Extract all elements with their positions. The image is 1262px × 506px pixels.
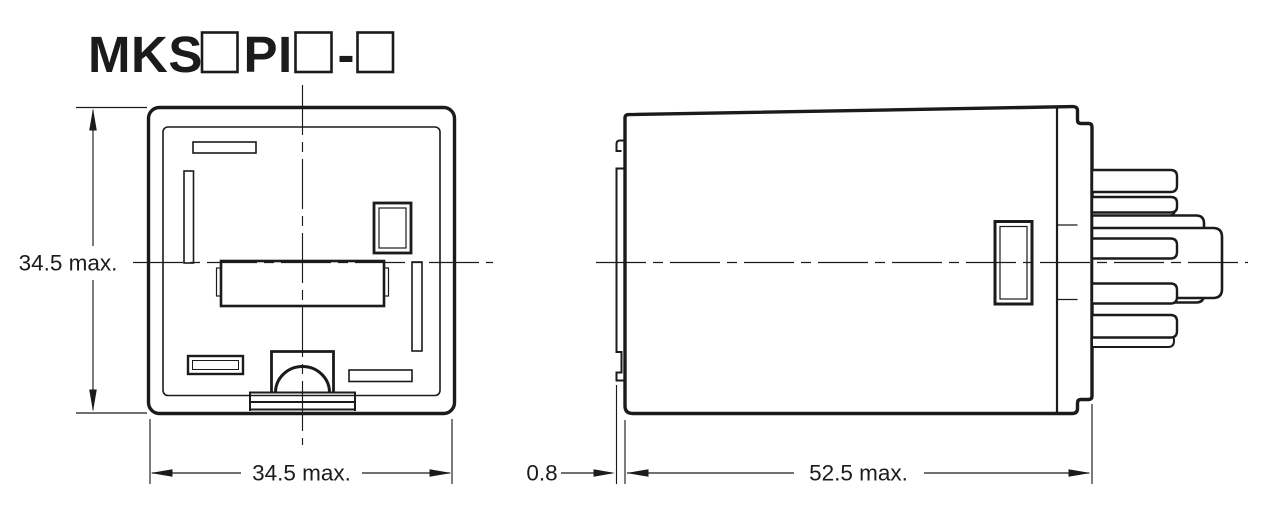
title-placeholder-box-1 (202, 33, 238, 73)
arrowhead-up (89, 109, 97, 131)
dimension-front-width: 34.5 max. (150, 419, 452, 486)
pin-2 (1092, 197, 1177, 213)
title-separator: - (338, 26, 355, 83)
arrowhead-left (627, 469, 649, 477)
arrowhead-right (594, 469, 616, 477)
length-dimension-label: 52.5 max. (809, 461, 908, 486)
pin-4 (1092, 284, 1177, 304)
width-dimension-label: 34.5 max. (252, 461, 351, 486)
dimension-side-flange: 0.8 (526, 385, 625, 486)
height-dimension-label: 34.5 max. (19, 251, 118, 276)
arrowhead-right (1069, 469, 1091, 477)
arrowhead-right (430, 469, 452, 477)
side-view (596, 107, 1248, 414)
pin-1 (1092, 170, 1177, 192)
model-title: MKS PI - (88, 26, 393, 83)
arrowhead-left (151, 469, 173, 477)
dimension-side-length: 52.5 max. (627, 404, 1093, 486)
title-infix: PI (244, 26, 293, 83)
side-flange-hook (617, 141, 625, 152)
title-placeholder-box-2 (296, 33, 332, 73)
drawing-canvas: MKS PI - (0, 0, 1262, 506)
title-placeholder-box-3 (358, 33, 394, 73)
dimension-front-height: 34.5 max. (19, 108, 147, 414)
pin-3 (1092, 239, 1177, 259)
arrowhead-down (89, 390, 97, 412)
relay-dimension-diagram: MKS PI - (0, 0, 1262, 506)
front-view (133, 85, 493, 445)
pin-5 (1092, 315, 1177, 338)
flange-dimension-label: 0.8 (526, 461, 557, 486)
title-prefix: MKS (88, 26, 203, 83)
side-body-outline (625, 107, 1092, 414)
